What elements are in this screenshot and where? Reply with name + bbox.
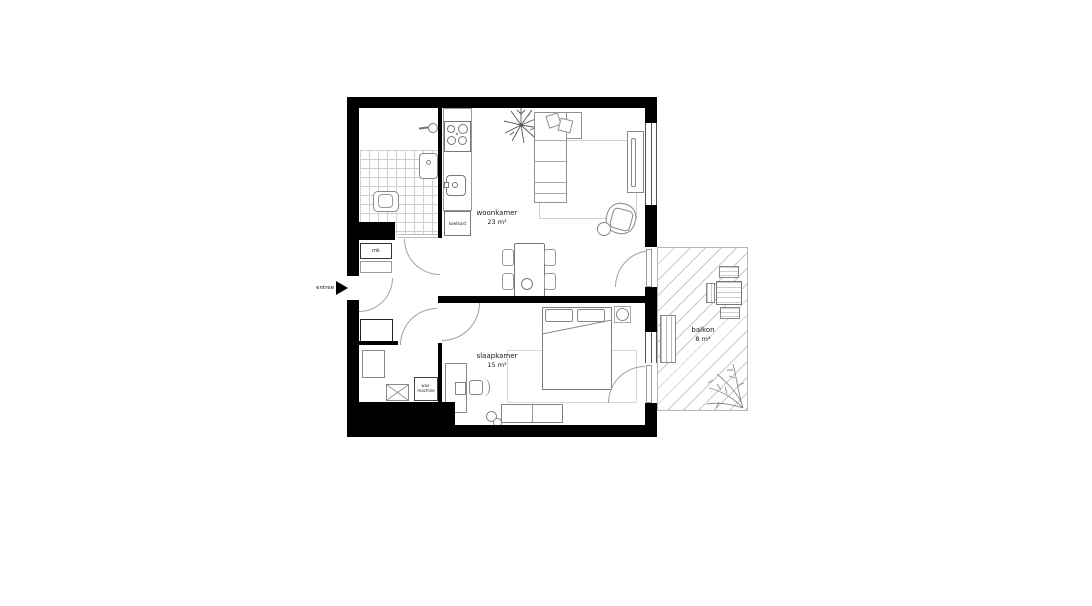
room-name: slaapkamer — [457, 352, 537, 361]
laundry-cabinet — [362, 350, 385, 378]
dining-chair — [544, 249, 556, 266]
room-name: balkon — [663, 326, 743, 335]
nightstand-lamp — [616, 308, 629, 321]
wall-bathroom-bottom — [358, 222, 395, 240]
shaft-box — [386, 384, 409, 401]
bathroom-door-arc — [404, 239, 440, 275]
entrance-door-arc — [359, 278, 393, 312]
balcony-chair — [720, 307, 740, 319]
desk-chair — [469, 380, 483, 395]
stove-burner — [447, 136, 456, 145]
stove-knob — [456, 133, 458, 135]
dining-chair — [502, 273, 514, 290]
balcony-door-leaf — [646, 249, 652, 287]
stove-burner — [447, 125, 455, 133]
monitor — [455, 382, 466, 395]
wall-right-3 — [645, 287, 657, 332]
tv — [631, 138, 636, 187]
meter-cupboard: mk — [360, 243, 392, 259]
side-table — [597, 222, 611, 236]
floor-plan: koelkast mk was- machine — [0, 0, 1092, 606]
dining-chair — [502, 249, 514, 266]
wall-bedroom-left — [438, 343, 442, 425]
stove-burner — [458, 124, 468, 134]
washbasin — [419, 153, 438, 179]
room-label-slaapkamer: slaapkamer 15 m² — [457, 352, 537, 369]
shaft-cross-icon — [387, 385, 408, 400]
laundry-door-arc — [400, 308, 437, 345]
wall-right-4 — [645, 403, 657, 437]
sink-drain — [452, 182, 458, 188]
wall-divider-living-bedroom — [438, 296, 657, 303]
meter-cupboard-label: mk — [372, 248, 380, 254]
room-name: woonkamer — [457, 209, 537, 218]
wall-bathroom-right — [438, 108, 442, 238]
room-area: 8 m² — [663, 335, 743, 343]
stove-burner — [458, 136, 467, 145]
bathroom-door-threshold — [398, 234, 438, 238]
balcony-door-leaf — [646, 365, 652, 403]
washing-machine-label-line2: machine — [417, 389, 434, 394]
wall-top — [347, 97, 657, 108]
room-label-balkon: balkon 8 m² — [663, 326, 743, 343]
wall-laundry-top — [358, 341, 398, 345]
balcony-table — [716, 281, 742, 305]
washing-machine: was- machine — [414, 377, 438, 401]
shower-head-icon — [428, 123, 438, 133]
room-area: 23 m² — [457, 218, 537, 226]
washbasin-drain — [426, 160, 431, 165]
entrance-label: entree — [304, 285, 334, 291]
dining-chair — [544, 273, 556, 290]
bed-fold-line — [542, 317, 612, 337]
entrance-label-text: entree — [316, 285, 334, 291]
desk-chair-back — [483, 378, 490, 397]
shower-arm-icon — [419, 126, 428, 129]
toilet-seat — [378, 194, 393, 208]
entrance-arrow-icon — [336, 281, 348, 295]
balcony-plant-icon — [703, 358, 751, 412]
sink-faucet — [444, 182, 449, 188]
hall-shelf — [360, 261, 392, 273]
wall-right-1 — [645, 97, 657, 123]
balcony-chair — [719, 266, 739, 278]
balcony-chair — [706, 283, 715, 303]
window-bedroom — [645, 332, 657, 363]
wall-left-upper — [347, 97, 359, 276]
wall-right-2 — [645, 205, 657, 247]
room-label-woonkamer: woonkamer 23 m² — [457, 209, 537, 226]
room-area: 15 m² — [457, 361, 537, 369]
window-living-room — [645, 123, 657, 205]
hall-cabinet — [360, 319, 393, 342]
fruit-bowl — [521, 278, 533, 290]
sideboard — [501, 404, 563, 423]
bedroom-door-arc — [442, 303, 480, 341]
